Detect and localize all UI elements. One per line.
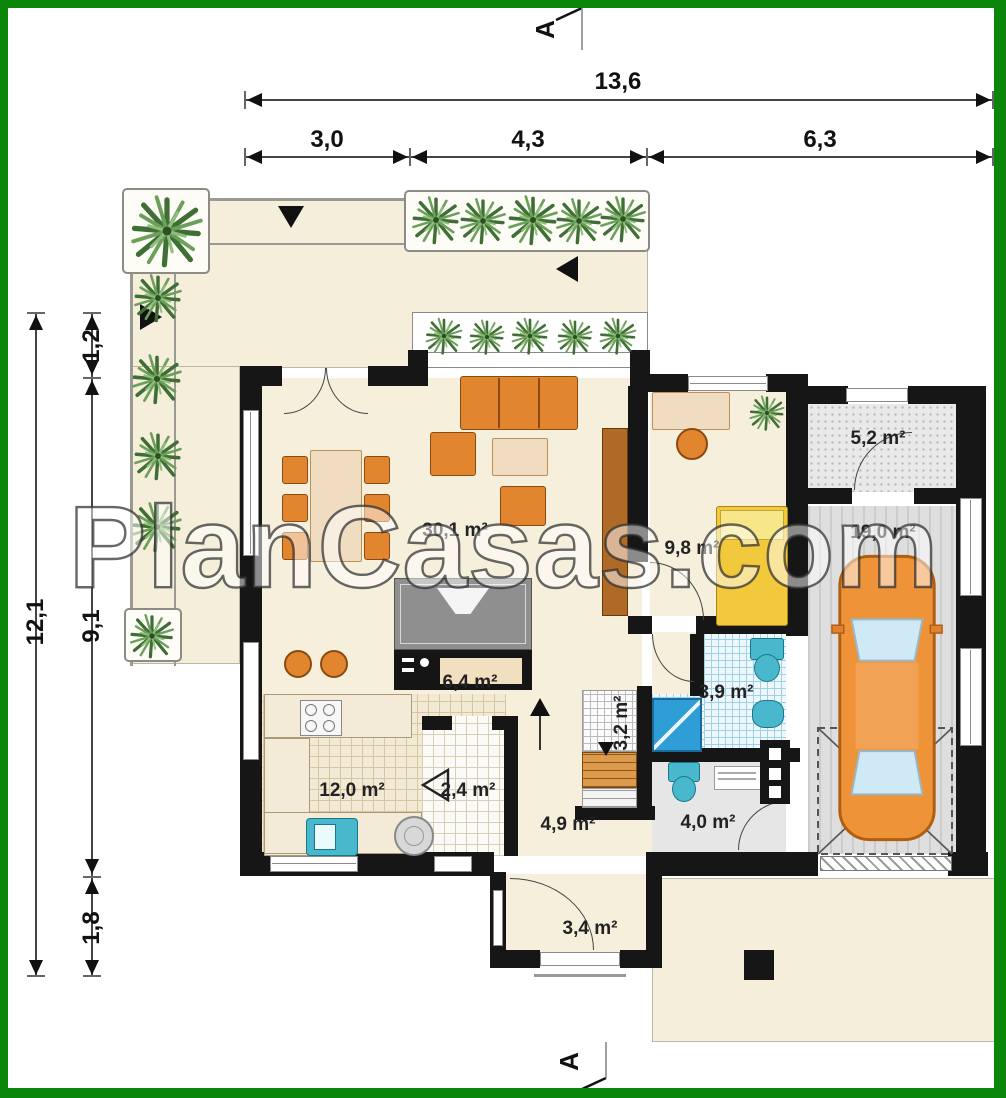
armchair bbox=[430, 432, 476, 476]
wardrobe bbox=[602, 428, 628, 616]
window-line bbox=[970, 650, 971, 744]
wall-segment bbox=[948, 852, 988, 876]
dimension-arrow-icon bbox=[29, 315, 43, 330]
window bbox=[846, 388, 908, 402]
plant-icon bbox=[458, 196, 508, 246]
plant-icon bbox=[556, 318, 594, 356]
dining-chair bbox=[364, 456, 390, 484]
plant-icon bbox=[506, 193, 560, 247]
pillar bbox=[744, 950, 774, 980]
bar-stool bbox=[320, 650, 348, 678]
window-line bbox=[970, 500, 971, 594]
burner-icon bbox=[305, 720, 317, 732]
plant-icon bbox=[132, 272, 184, 324]
dimension-label: 1,8 bbox=[78, 898, 106, 958]
wall-segment bbox=[806, 488, 852, 504]
wall-segment bbox=[786, 374, 808, 636]
stairs-arrow-line bbox=[539, 716, 541, 750]
plant-icon bbox=[128, 612, 176, 660]
dimension-label: 12,1 bbox=[22, 592, 50, 652]
dimension-tick bbox=[244, 91, 246, 109]
dimension-label: 13,6 bbox=[588, 68, 648, 96]
wall-segment bbox=[914, 488, 958, 504]
sofa-cushion-line bbox=[498, 378, 500, 428]
desk-chair bbox=[676, 428, 708, 460]
dimension-tick bbox=[409, 148, 411, 166]
frame-border-left bbox=[0, 0, 8, 1098]
room-area-label: 3,9 m² bbox=[678, 682, 774, 704]
wall-segment bbox=[792, 852, 818, 876]
window-line bbox=[690, 383, 766, 384]
frame-border-bottom bbox=[0, 1088, 1006, 1098]
chimney-flue-icon bbox=[769, 768, 781, 780]
window bbox=[493, 890, 503, 946]
wall-segment bbox=[240, 366, 282, 386]
wall-segment bbox=[646, 852, 792, 876]
stairs-lower bbox=[582, 788, 637, 808]
dimension-arrow-icon bbox=[85, 960, 99, 975]
entry-step bbox=[534, 974, 626, 977]
wall-segment bbox=[422, 716, 452, 730]
chimney-flue-icon bbox=[769, 786, 781, 798]
plant-icon bbox=[424, 316, 464, 356]
wall-segment bbox=[648, 374, 688, 392]
window-line bbox=[250, 412, 251, 554]
burner-icon bbox=[323, 704, 335, 716]
dimension-arrow-icon bbox=[85, 859, 99, 874]
dimension-label: 1,2 bbox=[78, 316, 106, 376]
plant-icon bbox=[130, 352, 184, 406]
dimension-label: 3,0 bbox=[297, 126, 357, 154]
entry-door-opening bbox=[540, 952, 620, 966]
plant-icon bbox=[598, 194, 648, 244]
plant-icon bbox=[132, 430, 184, 482]
sink-basin bbox=[314, 824, 336, 850]
cabinet-line bbox=[718, 778, 756, 780]
plant-icon bbox=[130, 500, 184, 554]
garage-door bbox=[820, 856, 952, 871]
burner-icon bbox=[323, 720, 335, 732]
dimension-tick bbox=[83, 876, 101, 878]
window-line bbox=[272, 863, 356, 864]
window bbox=[434, 856, 472, 872]
chimney-flue-icon bbox=[769, 748, 781, 760]
frame-border-top bbox=[0, 0, 1006, 8]
dining-chair bbox=[282, 532, 308, 560]
wall-segment bbox=[646, 872, 662, 968]
burner-icon bbox=[305, 704, 317, 716]
window bbox=[960, 648, 982, 746]
car-icon bbox=[828, 548, 946, 848]
dimension-tick bbox=[83, 377, 101, 379]
dimension-arrow-icon bbox=[412, 150, 427, 164]
dimension-tick bbox=[83, 312, 101, 314]
dimension-arrow-icon bbox=[630, 150, 645, 164]
plant-icon bbox=[554, 196, 604, 246]
section-line-icon bbox=[552, 6, 588, 52]
dining-chair bbox=[364, 532, 390, 560]
wall-segment bbox=[637, 686, 652, 812]
dimension-label: 6,3 bbox=[790, 126, 850, 154]
plant-icon bbox=[468, 318, 506, 356]
toilet-icon bbox=[754, 654, 780, 682]
wall-segment bbox=[800, 386, 848, 404]
dimension-tick bbox=[27, 975, 45, 977]
plant-icon bbox=[748, 394, 786, 432]
sofa-cushion-line bbox=[538, 378, 540, 428]
room-area-label: 2,4 m² bbox=[420, 780, 516, 802]
desk bbox=[652, 392, 730, 430]
room-area-label: 30,1 m² bbox=[395, 520, 515, 542]
floor-plan-canvas: 30,1 m² 9,8 m² 5,2 m² 19,0 m² 6,4 m² 12,… bbox=[0, 0, 1006, 1098]
dimension-arrow-icon bbox=[393, 150, 408, 164]
appliance-inner bbox=[404, 826, 424, 846]
section-line-icon bbox=[576, 1040, 612, 1092]
sofa bbox=[460, 376, 578, 430]
dimension-arrow-icon bbox=[247, 93, 262, 107]
dimension-line bbox=[245, 156, 993, 158]
dimension-tick bbox=[27, 312, 45, 314]
dining-chair bbox=[364, 494, 390, 522]
window bbox=[960, 498, 982, 596]
dimension-arrow-icon bbox=[247, 150, 262, 164]
wall-segment bbox=[628, 616, 652, 634]
room-area-label: 3,4 m² bbox=[542, 918, 638, 940]
stairs-up-arrow-icon bbox=[530, 698, 550, 716]
room-area-label: 9,8 m² bbox=[640, 538, 744, 560]
wall-segment bbox=[956, 386, 986, 856]
room-area-label: 4,9 m² bbox=[520, 814, 616, 836]
direction-arrow-icon bbox=[556, 256, 578, 282]
dimension-arrow-icon bbox=[29, 960, 43, 975]
wall-segment bbox=[490, 950, 540, 968]
dimension-arrow-icon bbox=[976, 150, 991, 164]
window bbox=[270, 856, 358, 872]
room-area-label: 12,0 m² bbox=[298, 780, 406, 802]
frame-border-right bbox=[994, 0, 1006, 1098]
dimension-tick bbox=[244, 148, 246, 166]
window bbox=[243, 642, 259, 760]
plant-icon bbox=[598, 316, 638, 356]
driveway-terrace bbox=[652, 878, 996, 1042]
cabinet-line bbox=[718, 772, 756, 774]
coffee-table bbox=[492, 438, 548, 476]
wc-toilet-icon bbox=[672, 776, 696, 802]
dimension-label: 9,1 bbox=[78, 596, 106, 656]
counter-mark bbox=[402, 668, 414, 672]
dimension-arrow-icon bbox=[85, 380, 99, 395]
room-area-label: 3,2 m² bbox=[611, 675, 633, 771]
room-area-label: 4,0 m² bbox=[660, 812, 756, 834]
direction-arrow-icon bbox=[278, 206, 304, 228]
dining-chair bbox=[282, 494, 308, 522]
dimension-arrow-icon bbox=[976, 93, 991, 107]
dimension-arrow-icon bbox=[649, 150, 664, 164]
bar-stool bbox=[284, 650, 312, 678]
plant-icon bbox=[510, 316, 550, 356]
dimension-tick bbox=[83, 975, 101, 977]
counter-mark bbox=[402, 658, 414, 662]
dimension-line bbox=[245, 99, 993, 101]
dimension-arrow-icon bbox=[85, 879, 99, 894]
dining-chair bbox=[282, 456, 308, 484]
bathroom-sink-icon bbox=[752, 700, 784, 728]
window bbox=[243, 410, 259, 556]
pillow bbox=[720, 510, 784, 540]
room-area-label: 5,2 m² bbox=[828, 428, 928, 450]
wall-segment bbox=[628, 386, 648, 562]
wall-segment bbox=[908, 386, 962, 404]
shower-icon bbox=[652, 698, 702, 752]
plant-icon bbox=[128, 192, 206, 270]
plant-icon bbox=[410, 194, 462, 246]
dining-table bbox=[310, 450, 362, 562]
stove-knob-icon bbox=[420, 658, 429, 667]
dimension-label: 4,3 bbox=[498, 126, 558, 154]
room-area-label: 6,4 m² bbox=[420, 672, 520, 694]
dimension-tick bbox=[646, 148, 648, 166]
room-area-label: 19,0 m² bbox=[828, 522, 938, 544]
wall-segment bbox=[492, 716, 518, 730]
